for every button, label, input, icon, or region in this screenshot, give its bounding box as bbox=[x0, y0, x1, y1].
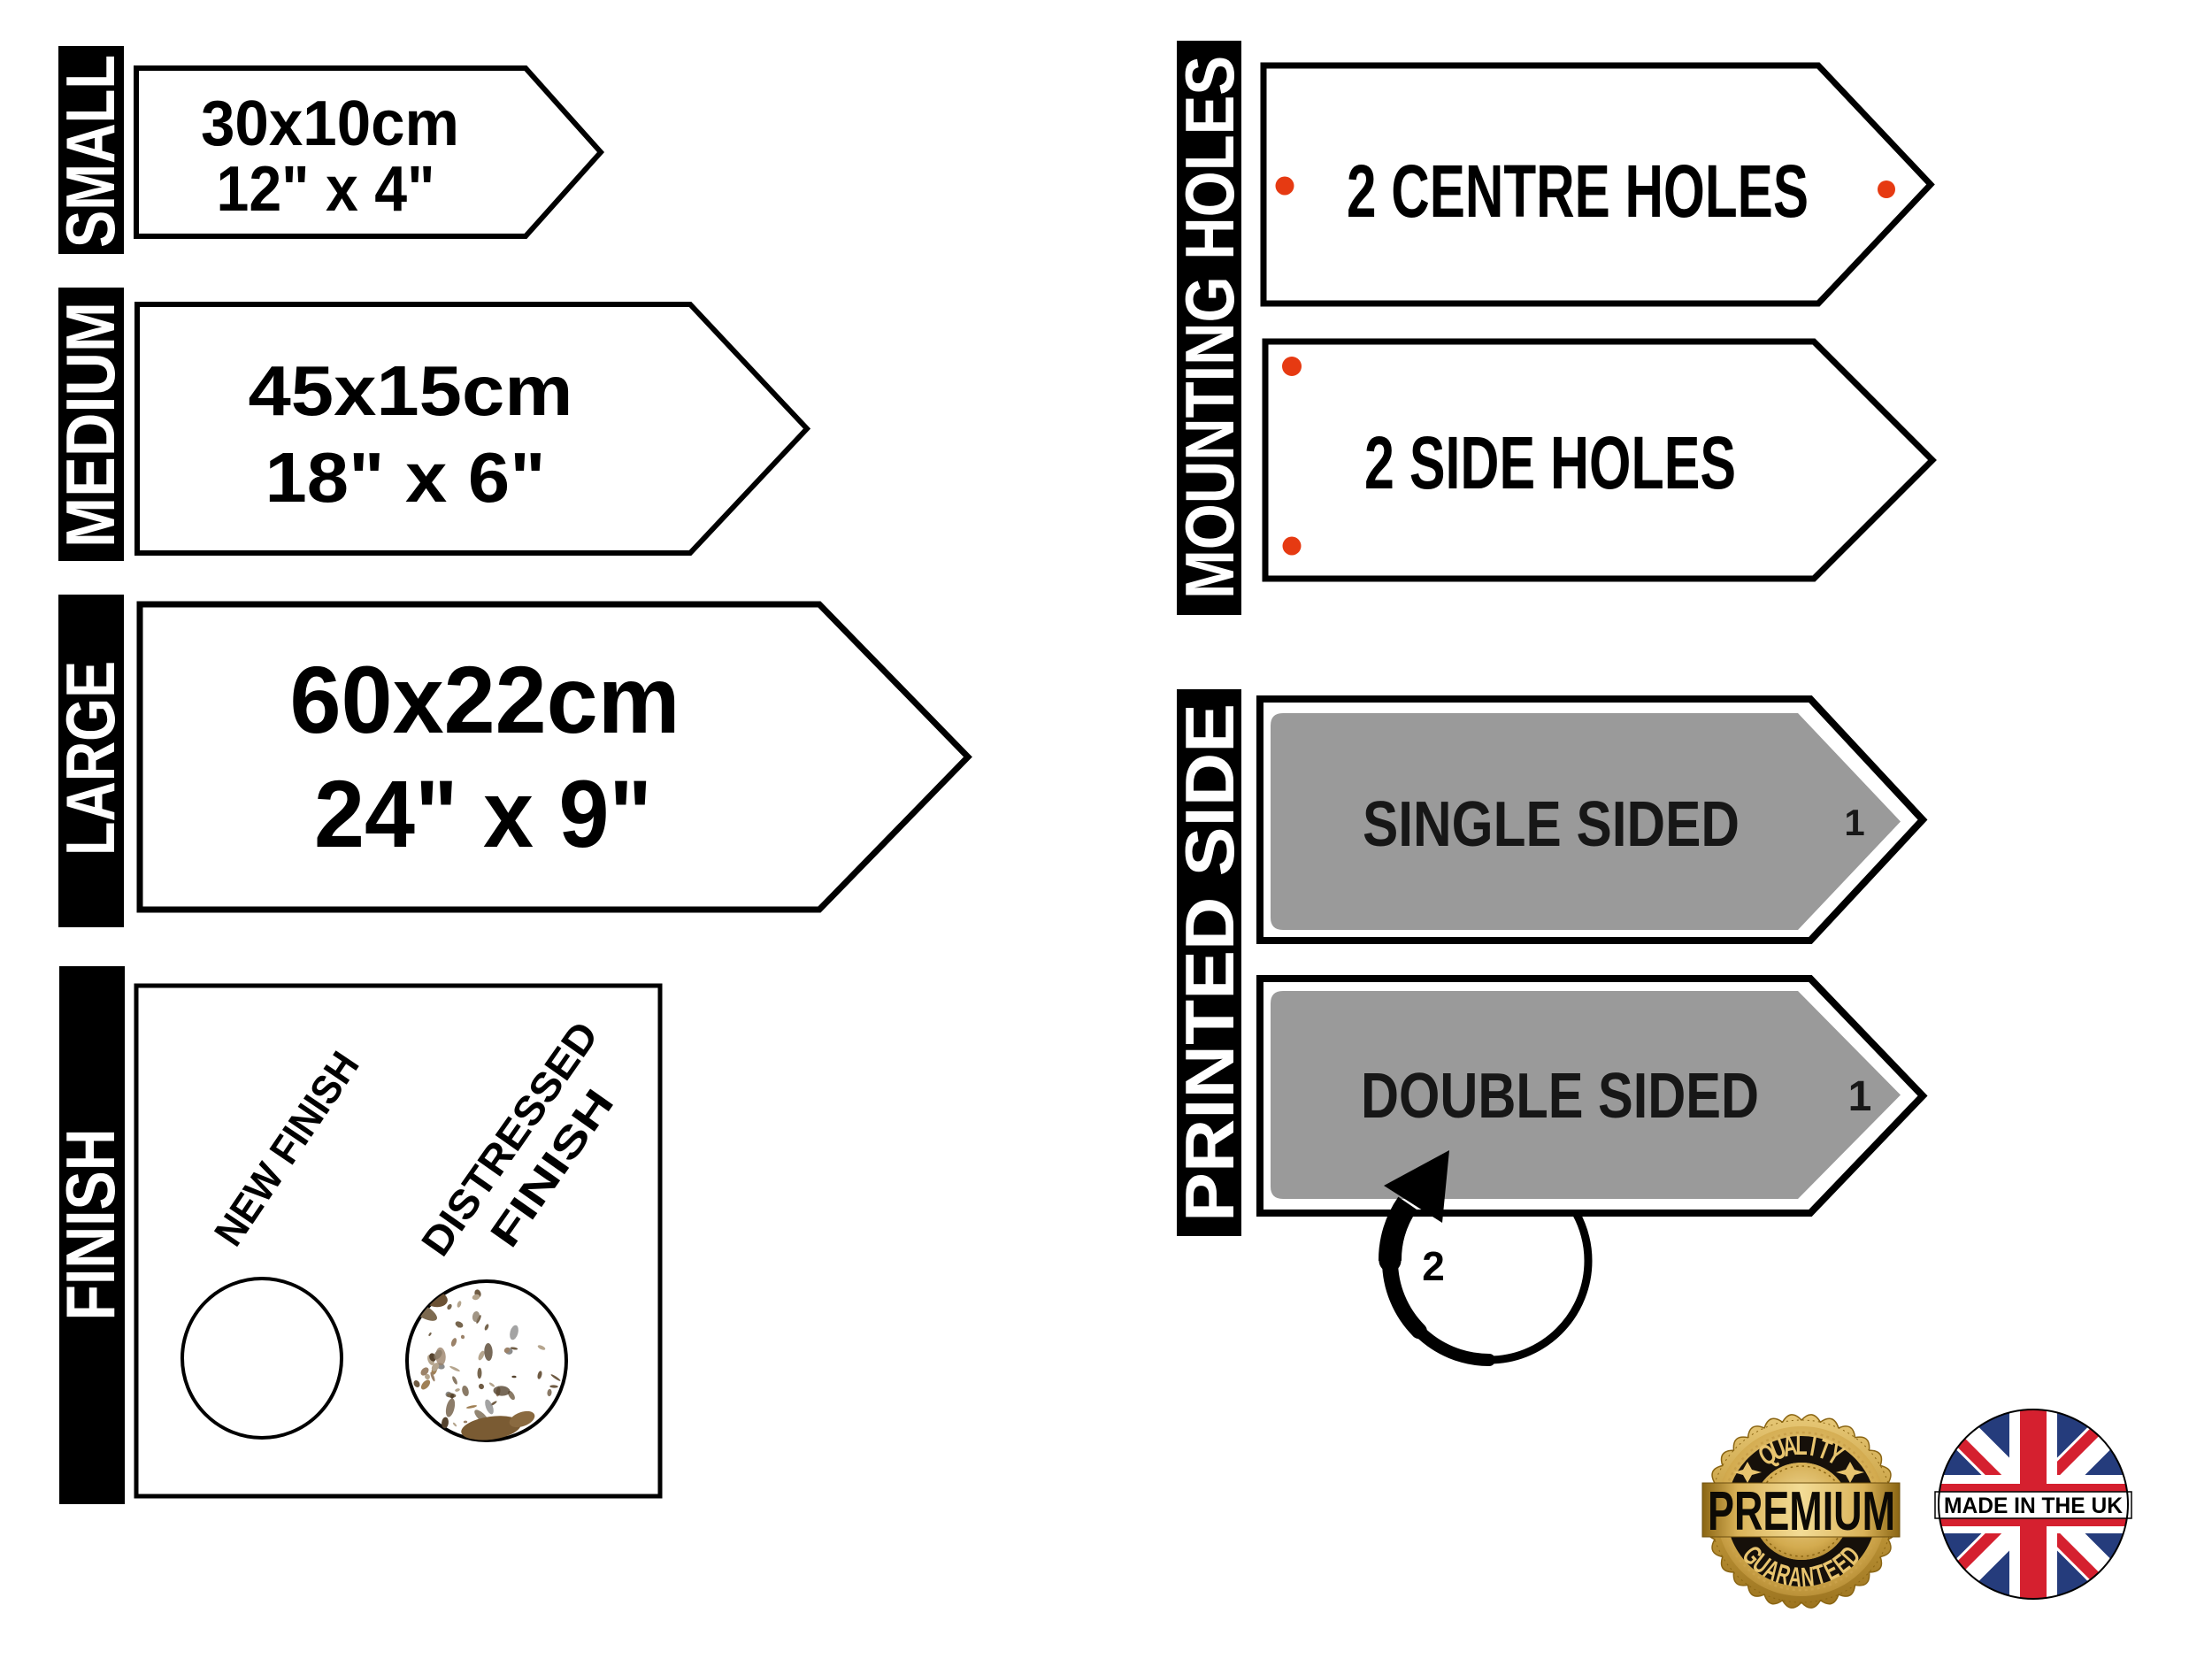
svg-text:18" x 6": 18" x 6" bbox=[265, 438, 546, 517]
svg-text:PRINTED SIDE: PRINTED SIDE bbox=[1171, 703, 1248, 1222]
svg-text:24" x 9": 24" x 9" bbox=[314, 760, 652, 867]
svg-text:2 SIDE HOLES: 2 SIDE HOLES bbox=[1364, 421, 1736, 504]
svg-text:MEDIUM: MEDIUM bbox=[51, 302, 129, 548]
svg-text:SINGLE SIDED: SINGLE SIDED bbox=[1363, 789, 1740, 860]
svg-text:MADE IN THE UK: MADE IN THE UK bbox=[1944, 1494, 2123, 1518]
svg-text:60x22cm: 60x22cm bbox=[290, 646, 680, 753]
svg-text:PREMIUM: PREMIUM bbox=[1708, 1481, 1895, 1542]
svg-text:2 CENTRE HOLES: 2 CENTRE HOLES bbox=[1347, 150, 1809, 233]
svg-text:DOUBLE SIDED: DOUBLE SIDED bbox=[1361, 1061, 1759, 1132]
svg-text:FINISH: FINISH bbox=[51, 1129, 129, 1321]
svg-text:1: 1 bbox=[1844, 802, 1864, 843]
svg-text:1: 1 bbox=[1848, 1073, 1872, 1120]
svg-text:L: L bbox=[1795, 1429, 1807, 1461]
svg-text:12" x 4": 12" x 4" bbox=[217, 154, 435, 225]
svg-text:SMALL: SMALL bbox=[51, 55, 129, 248]
svg-text:45x15cm: 45x15cm bbox=[249, 351, 573, 430]
svg-text:LARGE: LARGE bbox=[51, 661, 129, 856]
svg-text:30x10cm: 30x10cm bbox=[201, 88, 459, 159]
svg-text:2: 2 bbox=[1422, 1243, 1445, 1289]
svg-text:MOUNTING HOLES: MOUNTING HOLES bbox=[1171, 56, 1248, 599]
